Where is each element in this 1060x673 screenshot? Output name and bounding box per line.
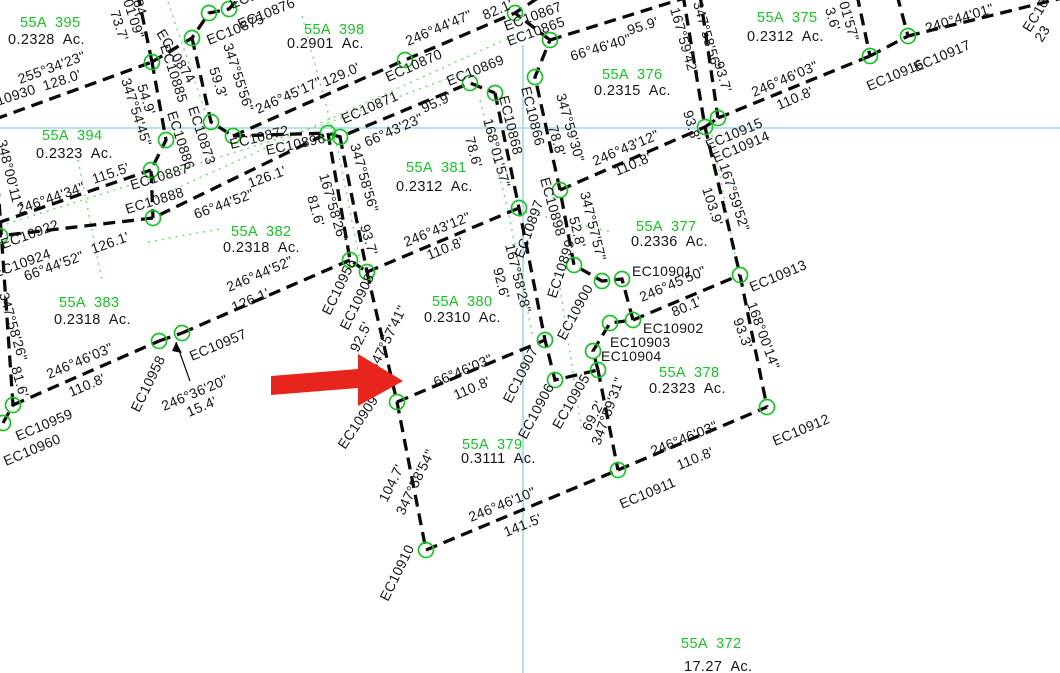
parcel-id-label: 55A 395 — [20, 15, 80, 31]
parcel-id-label: 55A 381 — [406, 160, 466, 176]
parcel-area-label: 0.2312 Ac. — [747, 29, 824, 45]
parcel-area-label: 17.27 Ac. — [684, 659, 753, 673]
plat-map-canvas: 55A 3950.2328 Ac.55A 3940.2323 Ac.55A 39… — [0, 0, 1060, 673]
plat-map-viewport: 55A 3950.2328 Ac.55A 3940.2323 Ac.55A 39… — [0, 0, 1060, 673]
parcel-id-label: 55A 382 — [231, 224, 291, 240]
parcel-area-label: 0.2323 Ac. — [36, 146, 113, 162]
parcel-id-label: 55A 394 — [42, 128, 102, 144]
parcel-id-label: 55A 380 — [432, 294, 492, 310]
parcel-area-label: 0.2328 Ac. — [8, 32, 85, 48]
parcel-area-label: 0.2336 Ac. — [631, 234, 708, 250]
parcel-id-label: 55A 377 — [636, 219, 696, 235]
parcel-id-label: 55A 378 — [659, 365, 719, 381]
parcel-area-label: 0.3111 Ac. — [461, 451, 536, 467]
parcel-area-label: 0.2315 Ac. — [594, 83, 671, 99]
parcel-area-label: 0.2312 Ac. — [396, 179, 473, 195]
parcel-area-label: 0.2323 Ac. — [649, 381, 726, 397]
parcel-area-label: 0.2901 Ac. — [287, 36, 364, 52]
parcel-id-label: 55A 372 — [681, 636, 741, 652]
parcel-area-label: 0.2318 Ac. — [54, 312, 131, 328]
parcel-id-label: 55A 376 — [602, 67, 662, 83]
parcel-id-label: 55A 383 — [59, 295, 119, 311]
point-id-label: EC10904 — [601, 348, 661, 364]
parcel-area-label: 0.2310 Ac. — [424, 310, 501, 326]
parcel-id-label: 55A 375 — [757, 10, 817, 26]
